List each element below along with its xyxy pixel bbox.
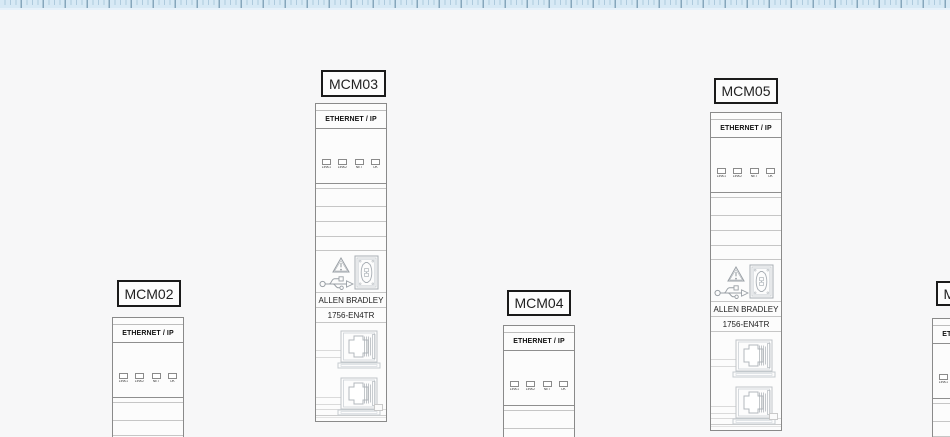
- led-label: NET: [544, 388, 551, 391]
- led-link2: LINK2: [730, 168, 745, 181]
- module-icon-panel: [316, 251, 386, 293]
- module-blank-row: [504, 429, 574, 437]
- drawing-canvas[interactable]: MCM02 ETHERNET / IP LINK1 LINK2 NET OK A…: [0, 0, 950, 437]
- led-indicator: [526, 381, 535, 387]
- horizontal-ruler: [0, 0, 950, 10]
- module-header: ETHERNET / IP: [711, 120, 781, 138]
- module-top-strip: [933, 319, 950, 326]
- module-top-strip: [113, 318, 183, 325]
- module-mcm05[interactable]: ETHERNET / IP LINK1 LINK2 NET OK ALLEN B…: [710, 112, 782, 431]
- led-indicator: [750, 168, 759, 174]
- led-label: OK: [768, 175, 773, 178]
- device-tag-label: MCM05: [721, 83, 770, 99]
- led-label: OK: [561, 388, 566, 391]
- led-indicator: [371, 159, 380, 165]
- led-label: LINK1: [510, 388, 519, 391]
- led-ok: OK: [368, 159, 383, 172]
- module-header: ETHERNET / IP: [316, 111, 386, 129]
- led-row: LINK1 LINK2 NET OK: [116, 373, 180, 386]
- led-label: LINK1: [119, 380, 128, 383]
- module-mcm06[interactable]: ETHERNET / IP LINK1 LINK2 NET OK ALLEN B…: [932, 318, 950, 437]
- device-tag-label: MCM04: [514, 295, 563, 311]
- module-mcm02[interactable]: ETHERNET / IP LINK1 LINK2 NET OK ALLEN B…: [112, 317, 184, 437]
- device-tag-mcm05[interactable]: MCM05: [714, 78, 778, 104]
- module-blank-row: [711, 246, 781, 260]
- module-header-label: ETHERNET / IP: [122, 330, 173, 337]
- led-label: LINK1: [717, 175, 726, 178]
- led-label: LINK2: [526, 388, 535, 391]
- module-blank-row: [113, 403, 183, 421]
- led-link1: LINK1: [936, 374, 950, 387]
- led-net: NET: [747, 168, 762, 181]
- module-port-panel: [711, 332, 781, 425]
- led-indicator: [559, 381, 568, 387]
- brand-label: ALLEN BRADLEY: [714, 305, 779, 314]
- led-label: NET: [356, 166, 363, 169]
- led-link1: LINK1: [507, 381, 522, 394]
- led-label: OK: [170, 380, 175, 383]
- port-panel-notch: [374, 404, 383, 411]
- module-top-strip: [316, 104, 386, 111]
- module-blank-row: [316, 222, 386, 237]
- module-blank-row: [711, 231, 781, 246]
- module-brand-row: ALLEN BRADLEY: [711, 302, 781, 317]
- device-tag-mcm03[interactable]: MCM03: [321, 70, 386, 97]
- led-link1: LINK1: [116, 373, 131, 386]
- device-tag-mcm02[interactable]: MCM02: [117, 280, 181, 307]
- brand-label: ALLEN BRADLEY: [319, 296, 384, 305]
- module-blank-row: [316, 237, 386, 251]
- device-tag-mcm04[interactable]: MCM04: [507, 290, 571, 316]
- usb-icon: [319, 274, 355, 290]
- led-indicator: [168, 373, 177, 379]
- module-led-panel: LINK1 LINK2 NET OK: [316, 129, 386, 184]
- led-net: NET: [352, 159, 367, 172]
- model-label: 1756-EN4TR: [723, 320, 770, 329]
- led-indicator: [939, 374, 948, 380]
- ethernet-port-icon: [337, 330, 381, 370]
- port-connector-icon: [749, 264, 774, 299]
- led-label: NET: [153, 380, 160, 383]
- module-top-strip: [504, 326, 574, 333]
- led-link2: LINK2: [335, 159, 350, 172]
- led-indicator: [717, 168, 726, 174]
- led-label: LINK2: [733, 175, 742, 178]
- ethernet-port-icon: [732, 339, 776, 379]
- module-header: ETHERNET / IP: [933, 326, 950, 344]
- led-label: LINK1: [939, 381, 948, 384]
- module-led-panel: LINK1 LINK2 NET OK: [711, 138, 781, 193]
- port-connector-icon: [354, 255, 379, 290]
- led-row: LINK1 LINK2 NET OK: [714, 168, 778, 181]
- led-indicator: [119, 373, 128, 379]
- led-ok: OK: [556, 381, 571, 394]
- led-net: NET: [149, 373, 164, 386]
- led-ok: OK: [165, 373, 180, 386]
- led-link2: LINK2: [132, 373, 147, 386]
- led-row: LINK1 LINK2 NET OK: [507, 381, 571, 394]
- led-link1: LINK1: [714, 168, 729, 181]
- led-link2: LINK2: [523, 381, 538, 394]
- usb-icon: [714, 283, 750, 299]
- module-icon-panel: [711, 260, 781, 302]
- led-indicator: [355, 159, 364, 165]
- module-model-row: 1756-EN4TR: [711, 317, 781, 332]
- led-row: LINK1 LINK2 NET OK: [319, 159, 383, 172]
- module-header-label: ETHERNET / IP: [513, 338, 564, 345]
- led-indicator: [766, 168, 775, 174]
- led-label: NET: [751, 175, 758, 178]
- device-tag-label: MCM02: [124, 286, 173, 302]
- led-indicator: [322, 159, 331, 165]
- led-ok: OK: [763, 168, 778, 181]
- led-net: NET: [540, 381, 555, 394]
- module-port-panel: [316, 323, 386, 416]
- warning-triangle-icon: [727, 266, 745, 282]
- led-label: OK: [373, 166, 378, 169]
- module-blank-row: [933, 422, 950, 437]
- ethernet-port-icon: [732, 386, 776, 426]
- led-indicator: [338, 159, 347, 165]
- device-tag-label: MCM06: [943, 286, 950, 302]
- ethernet-port-icon: [337, 377, 381, 417]
- led-row: LINK1 LINK2 NET OK: [936, 374, 950, 387]
- led-indicator: [152, 373, 161, 379]
- module-brand-row: ALLEN BRADLEY: [316, 293, 386, 308]
- module-blank-row: [504, 411, 574, 429]
- device-tag-label: MCM03: [329, 76, 378, 92]
- module-header: ETHERNET / IP: [504, 333, 574, 351]
- module-blank-row: [933, 404, 950, 422]
- led-indicator: [733, 168, 742, 174]
- module-mcm03[interactable]: ETHERNET / IP LINK1 LINK2 NET OK ALLEN B…: [315, 103, 387, 422]
- led-indicator: [510, 381, 519, 387]
- module-blank-row: [113, 421, 183, 436]
- led-label: LINK2: [338, 166, 347, 169]
- module-blank-row: [316, 189, 386, 207]
- led-link1: LINK1: [319, 159, 334, 172]
- module-header: ETHERNET / IP: [113, 325, 183, 343]
- device-tag-mcm06[interactable]: MCM06: [936, 281, 950, 306]
- warning-triangle-icon: [332, 257, 350, 273]
- module-model-row: 1756-EN4TR: [316, 308, 386, 323]
- module-header-label: ETHERNET / IP: [720, 125, 771, 132]
- module-led-panel: LINK1 LINK2 NET OK: [113, 343, 183, 398]
- module-blank-row: [316, 207, 386, 222]
- module-header-label: ETHERNET / IP: [942, 331, 950, 338]
- module-mcm04[interactable]: ETHERNET / IP LINK1 LINK2 NET OK ALLEN B…: [503, 325, 575, 437]
- module-blank-row: [711, 198, 781, 216]
- module-top-strip: [711, 113, 781, 120]
- led-label: LINK1: [322, 166, 331, 169]
- module-led-panel: LINK1 LINK2 NET OK: [933, 344, 950, 399]
- led-indicator: [135, 373, 144, 379]
- model-label: 1756-EN4TR: [328, 311, 375, 320]
- led-indicator: [543, 381, 552, 387]
- module-led-panel: LINK1 LINK2 NET OK: [504, 351, 574, 406]
- module-header-label: ETHERNET / IP: [325, 116, 376, 123]
- led-label: LINK2: [135, 380, 144, 383]
- module-blank-row: [711, 216, 781, 231]
- port-panel-notch: [769, 413, 778, 420]
